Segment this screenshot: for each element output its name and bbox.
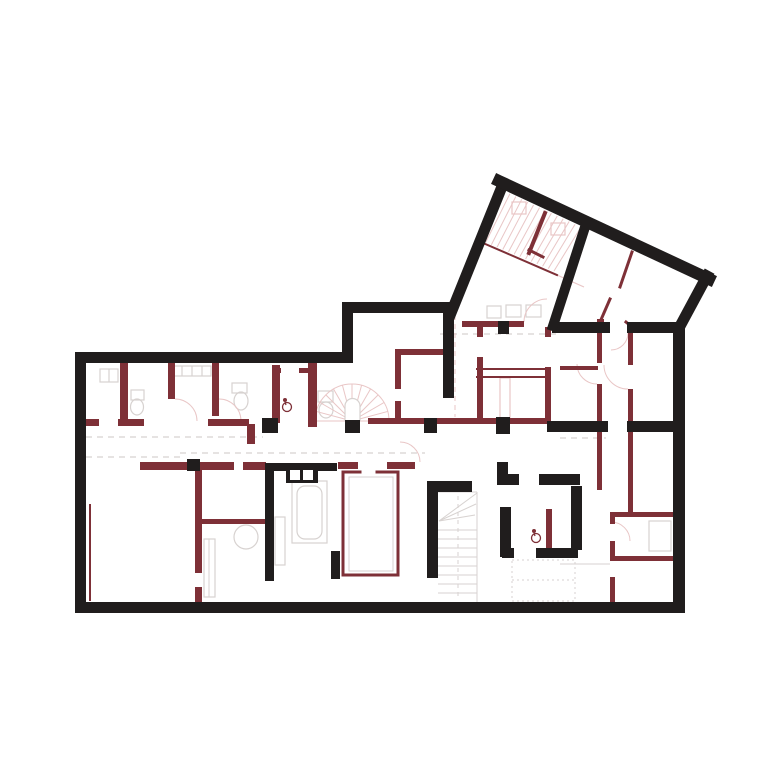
stove-burner <box>303 470 313 480</box>
structural-wall <box>539 474 580 485</box>
furniture-outline <box>234 525 258 549</box>
structural-wall <box>627 421 685 432</box>
structural-wall-angled <box>679 276 707 328</box>
partition-wall-red <box>85 419 99 426</box>
partition-wall-red <box>628 432 633 515</box>
door-swing-detail <box>551 223 565 235</box>
floor-drain-icon <box>532 534 541 543</box>
floor-drain-icon <box>283 403 292 412</box>
partition-wall-red <box>120 363 128 425</box>
furniture-outline <box>526 305 541 317</box>
furniture-outline <box>232 383 247 393</box>
partition-wall-red <box>368 418 425 424</box>
structural-wall <box>345 420 360 433</box>
partition-wall-red <box>545 367 551 424</box>
door-swing-detail <box>524 299 547 322</box>
structural-wall <box>262 418 278 433</box>
partition-wall-red <box>395 349 444 355</box>
furniture-outline <box>506 305 521 317</box>
door-swing-detail <box>400 442 420 462</box>
partition-wall-red <box>343 472 398 575</box>
partition-wall-red <box>118 419 144 426</box>
structural-wall <box>552 322 610 333</box>
partition-wall-red <box>308 363 317 427</box>
furniture-outline <box>297 486 322 539</box>
structural-wall <box>331 551 340 579</box>
partition-wall-red <box>195 587 202 603</box>
partition-wall-red <box>610 512 615 524</box>
partition-wall-red <box>628 333 633 365</box>
partition-wall-red <box>529 213 545 253</box>
structural-wall <box>673 322 685 613</box>
structural-wall <box>187 459 200 471</box>
door-swing-detail <box>175 399 197 421</box>
stair-lines <box>345 399 360 422</box>
structural-wall <box>342 302 454 313</box>
structural-wall <box>424 418 437 433</box>
furniture-outline <box>487 306 501 318</box>
furniture-outline <box>131 399 144 415</box>
partition-wall-red <box>387 462 415 469</box>
hatch-line <box>503 202 528 249</box>
floor-drain-icon <box>532 529 536 533</box>
partition-wall-red <box>509 321 524 327</box>
partition-wall-red <box>168 363 175 399</box>
floor-plan-svg <box>0 0 780 767</box>
partition-wall-red <box>628 389 633 422</box>
structural-wall <box>265 465 274 581</box>
structural-wall <box>75 352 86 613</box>
partition-wall-red <box>395 349 401 389</box>
floor-plan <box>0 0 780 767</box>
hatch-line <box>497 199 522 247</box>
door-swing-detail <box>611 333 628 350</box>
furniture-outline <box>275 517 285 565</box>
partition-wall-red <box>560 366 598 370</box>
partition-wall-red <box>247 424 255 444</box>
structural-wall <box>75 602 685 613</box>
furniture-outline <box>649 521 671 551</box>
partition-wall-red <box>477 357 483 424</box>
partition-wall-red <box>140 462 189 470</box>
structural-wall <box>497 474 519 485</box>
structural-wall <box>427 481 438 578</box>
partition-wall-red <box>208 419 249 426</box>
partition-wall-red <box>243 462 266 470</box>
stove-burner <box>290 470 300 480</box>
partition-wall-red <box>272 365 280 423</box>
partition-wall-red <box>610 556 673 561</box>
partition-wall-red <box>610 541 615 558</box>
structural-wall <box>502 548 514 558</box>
partition-wall-red <box>597 432 602 490</box>
partition-wall-red <box>462 321 498 327</box>
partition-wall-red <box>597 333 602 363</box>
partition-wall-red <box>610 512 673 517</box>
partition-wall-red <box>477 327 483 337</box>
structural-wall <box>427 481 472 492</box>
partition-wall-red <box>597 384 602 422</box>
partition-wall-red <box>610 577 615 603</box>
door-swing-detail <box>611 522 630 541</box>
partition-wall-red <box>620 252 632 287</box>
structural-wall <box>75 352 353 363</box>
partition-wall-red <box>272 368 281 373</box>
structural-wall <box>496 417 510 434</box>
partition-wall-red <box>529 250 543 257</box>
partition-wall-red <box>510 418 548 424</box>
structural-wall <box>498 321 509 334</box>
partition-wall-red <box>437 418 497 424</box>
door-swing-detail <box>604 365 628 389</box>
structural-wall <box>497 462 508 475</box>
partition-wall-red <box>299 368 308 373</box>
partition-wall-red <box>338 462 358 469</box>
furniture-outline <box>349 477 393 571</box>
structural-wall <box>443 310 454 398</box>
partition-wall-red <box>212 363 219 416</box>
door-swing-detail <box>500 378 510 418</box>
structural-wall <box>571 486 582 550</box>
structural-wall <box>547 421 608 432</box>
partition-wall-red <box>200 462 234 470</box>
partition-wall-red <box>200 519 268 524</box>
door-swing-detail <box>219 399 241 421</box>
partition-wall-red <box>600 299 610 322</box>
floor-drain-icon <box>283 398 287 402</box>
partition-wall-red <box>546 509 552 548</box>
